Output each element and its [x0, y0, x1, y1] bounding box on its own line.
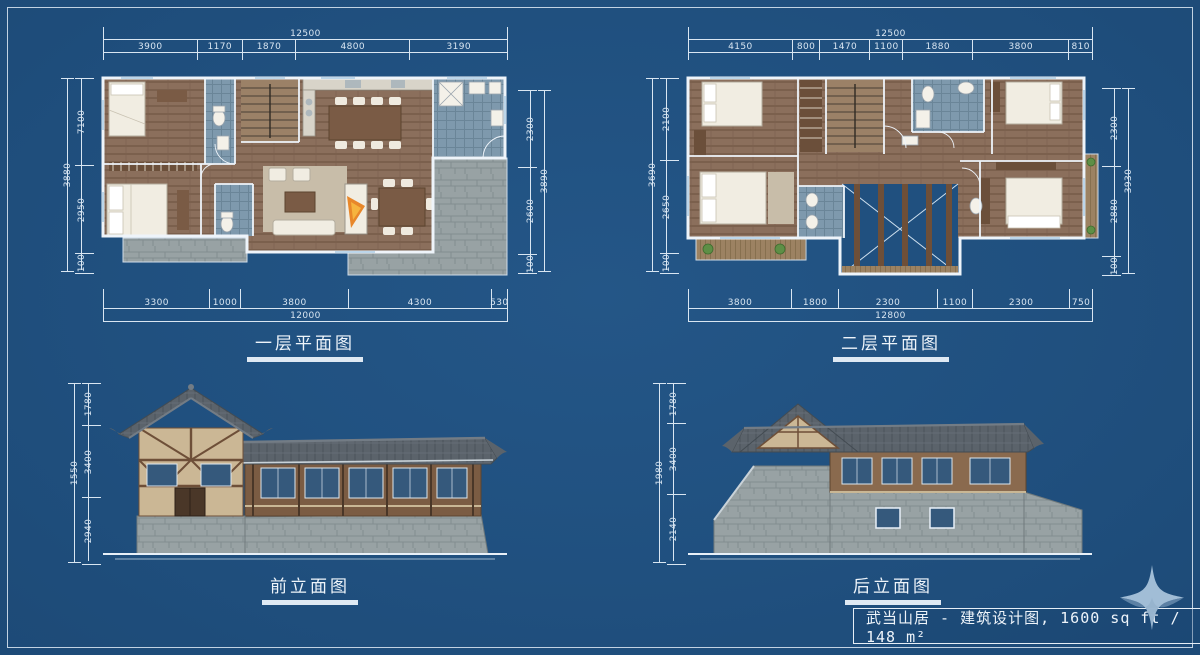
dim-chain-top-plan1: 12500 3900 1170 1870 4800 3190 — [103, 27, 508, 53]
bed-top-left — [702, 82, 762, 126]
dim-total: 12500 — [871, 29, 910, 40]
void-terrace — [842, 184, 958, 274]
dim-value: 1870 — [257, 42, 282, 53]
dim-value: 100 — [1110, 257, 1120, 275]
porch-stone — [123, 238, 247, 262]
dim-total: 12000 — [286, 311, 325, 322]
bathroom-2-tile — [215, 184, 253, 236]
dim-value: 1100 — [943, 298, 968, 309]
dim-chain-right-plan2: 2300 2880 100 3930 — [1108, 88, 1135, 272]
dim-value: 2650 — [662, 194, 672, 219]
rear-elevation-label: 后立面图 — [845, 572, 941, 600]
stone-wall-right — [1024, 492, 1082, 554]
dim-value: 1000 — [213, 298, 238, 309]
dim-total: 1980 — [655, 461, 665, 486]
dim-value: 3800 — [1008, 42, 1033, 53]
bed-top-left — [109, 82, 145, 136]
dim-value: 7100 — [77, 110, 87, 135]
dim-value: 1780 — [84, 392, 94, 417]
upper-story — [830, 450, 1026, 492]
desk-top-left — [157, 90, 187, 102]
dim-chain-right-plan1: 2300 2600 100 3890 — [524, 90, 551, 270]
dim-value: 2940 — [84, 519, 94, 544]
front-elevation-label: 前立面图 — [262, 572, 358, 600]
floor-plan-level1 — [95, 66, 515, 288]
dim-value: 3400 — [84, 449, 94, 474]
dim-total: 3690 — [648, 163, 658, 188]
roof — [722, 404, 1044, 452]
stone-wall-left — [714, 466, 832, 554]
stairs — [241, 80, 299, 142]
dim-total: 3880 — [63, 163, 73, 188]
dim-value: 2300 — [526, 117, 536, 142]
dim-value: 2300 — [876, 298, 901, 309]
dim-value: 1780 — [669, 391, 679, 416]
blueprint-sheet: 12500 3900 1170 1870 4800 3190 3300 1000… — [0, 0, 1200, 655]
plan2-label: 二层平面图 — [833, 329, 949, 357]
balcony-right-deck — [1084, 154, 1098, 238]
dim-value: 2600 — [526, 199, 536, 224]
dim-value: 1170 — [207, 42, 232, 53]
dim-value: 530 — [490, 298, 508, 309]
dim-chain-rear-elevation: 1980 1780 3400 2140 — [653, 383, 680, 561]
dim-value: 2300 — [1009, 298, 1034, 309]
bed-bottom-left — [700, 172, 794, 224]
main-body — [245, 460, 481, 516]
fireplace — [345, 184, 367, 234]
dim-value: 2140 — [669, 517, 679, 542]
dim-value: 810 — [1071, 42, 1089, 53]
dim-value: 2880 — [1110, 199, 1120, 224]
dim-value: 2100 — [662, 107, 672, 132]
plan1-label: 一层平面图 — [247, 329, 363, 357]
dim-value: 3800 — [282, 298, 307, 309]
stairs — [826, 80, 884, 152]
dim-total: 3930 — [1124, 169, 1134, 194]
dim-value: 100 — [77, 254, 87, 272]
dim-value: 750 — [1072, 298, 1090, 309]
dim-value: 1470 — [833, 42, 858, 53]
front-elevation — [95, 368, 515, 568]
dresser-bottom-left — [177, 190, 189, 230]
dim-total: 1550 — [70, 461, 80, 486]
dim-value: 3900 — [138, 42, 163, 53]
rear-elevation — [680, 368, 1100, 568]
dim-value: 800 — [797, 42, 815, 53]
dim-value: 100 — [662, 254, 672, 272]
left-tower — [137, 428, 245, 554]
dim-value: 4800 — [341, 42, 366, 53]
dim-chain-bottom-plan1: 3300 1000 3800 4300 530 12000 — [103, 296, 508, 322]
floor-plan-level2 — [680, 66, 1100, 288]
dim-value: 3300 — [144, 298, 169, 309]
dim-value: 3800 — [728, 298, 753, 309]
bathroom-bottom-tile — [798, 186, 844, 238]
dim-value: 2300 — [1110, 115, 1120, 140]
dim-chain-bottom-plan2: 3800 1800 2300 1100 2300 750 12800 — [688, 296, 1093, 322]
dim-total: 12800 — [871, 311, 910, 322]
dim-value: 1100 — [874, 42, 899, 53]
dim-chain-left-plan1: 3880 7100 2950 100 — [61, 78, 88, 270]
bed-top-right — [1006, 82, 1062, 124]
dim-value: 3400 — [669, 447, 679, 472]
dim-value: 3190 — [446, 42, 471, 53]
closet — [800, 80, 822, 152]
dim-chain-top-plan2: 12500 4150 800 1470 1100 1880 3800 810 — [688, 27, 1093, 53]
bed-bottom-right — [1006, 178, 1062, 228]
dim-value: 2950 — [77, 197, 87, 222]
bed-bottom-left — [107, 184, 167, 236]
dim-value: 4150 — [728, 42, 753, 53]
main-roof — [219, 438, 507, 464]
dim-chain-left-plan2: 3690 2100 2650 100 — [646, 78, 673, 270]
dim-value: 1880 — [925, 42, 950, 53]
dim-total: 3890 — [540, 169, 550, 194]
dim-chain-front-elevation: 1550 1780 3400 2940 — [68, 383, 95, 561]
dim-value: 1800 — [803, 298, 828, 309]
sparkle-logo-icon — [1116, 563, 1188, 647]
dim-value: 100 — [526, 255, 536, 273]
dim-value: 4300 — [408, 298, 433, 309]
dim-total: 12500 — [286, 29, 325, 40]
stone-wall-mid — [830, 492, 1026, 554]
